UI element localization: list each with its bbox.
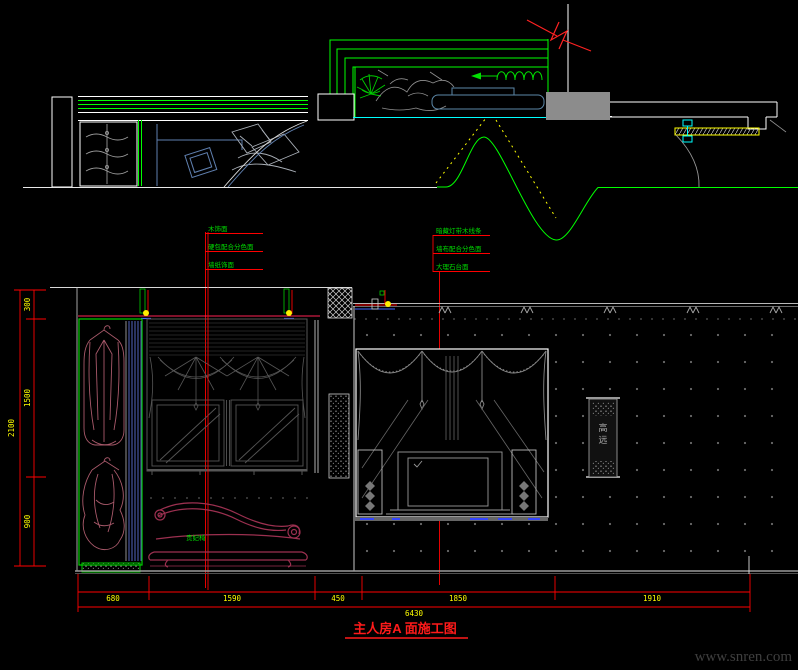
chaise-label: 贵妃椅: [186, 533, 206, 542]
dim-1850: 1850: [449, 594, 468, 603]
spotlight-icons: [439, 307, 782, 313]
door-swing-arc: [676, 135, 699, 187]
break-wave-line: [437, 137, 798, 240]
drawing-title: 主人房A 面施工图: [353, 621, 457, 636]
dim-900: 900: [23, 514, 32, 528]
dim-450: 450: [331, 594, 345, 603]
window-panels: [152, 400, 303, 466]
elevation-drawing-svg: 木饰面 硬包配合分色面 墙纸饰面 暗藏灯带木线条 墙布配合分色面 大理石台面: [0, 0, 798, 670]
scroll-char-2: 远: [598, 435, 607, 445]
elevation-view: 贵妃椅: [50, 232, 798, 590]
annotation-left-line3: 墙纸饰面: [208, 260, 235, 269]
dimension-left: 300 1500 900 2100: [7, 290, 46, 566]
plan-junction-box: [318, 94, 354, 120]
section-hatch-block: [328, 288, 352, 318]
leader-diagonal: [770, 120, 786, 132]
downlight-icon: [284, 289, 294, 319]
dim-1910: 1910: [643, 594, 662, 603]
textured-art-panel: [329, 394, 349, 478]
annotation-left-line1: 木饰面: [208, 224, 228, 233]
guide-dotted-2: [496, 120, 556, 218]
annotation-left-line2: 硬包配合分色面: [208, 242, 254, 251]
guide-dotted-1: [436, 118, 486, 183]
plan-bed-pillows: [224, 121, 307, 187]
dim-1590: 1590: [223, 594, 242, 603]
plan-pillar: [52, 97, 72, 187]
column-panel: [315, 320, 349, 478]
downlight-icon: [140, 289, 151, 319]
niche-base-band: [354, 517, 548, 521]
chaise-longue: [149, 503, 307, 567]
plan-platform: [432, 88, 544, 109]
plan-wall-block: [546, 92, 610, 120]
dim-680: 680: [106, 594, 120, 603]
window-curtain-unit: [147, 319, 307, 475]
hanging-scroll: 高 远: [586, 398, 620, 477]
plan-ceiling-band: [78, 97, 308, 121]
annotation-right-line2: 墙布配合分色面: [436, 244, 482, 253]
wardrobe-elevation: [79, 319, 142, 572]
dim-1500: 1500: [23, 388, 32, 407]
annotation-left: 木饰面 硬包配合分色面 墙纸饰面: [205, 224, 263, 588]
plan-door: [675, 120, 759, 187]
scroll-char-1: 高: [598, 422, 607, 433]
swag-curtains: [149, 357, 305, 418]
plan-view: [23, 4, 798, 240]
cad-drawing-canvas: 木饰面 硬包配合分色面 墙纸饰面 暗藏灯带木线条 墙布配合分色面 大理石台面: [0, 0, 798, 670]
annotation-right-line3: 大理石台面: [436, 262, 469, 271]
watermark: www.snren.com: [695, 649, 793, 665]
plan-desk-chair: [157, 124, 242, 186]
blind-slats: [149, 323, 305, 355]
dim-total-2100: 2100: [7, 418, 16, 437]
ceiling-left: [78, 289, 320, 319]
annotation-right-line1: 暗藏灯带木线条: [436, 226, 482, 235]
drawing-title-block: 主人房A 面施工图: [345, 621, 468, 638]
dim-300: 300: [23, 297, 32, 311]
plan-wardrobe: [80, 120, 142, 186]
ceiling-right: [353, 290, 798, 319]
break-mark-icon: [527, 20, 591, 51]
coil-arrow-icon: [471, 72, 542, 80]
dim-total-6430: 6430: [405, 609, 424, 618]
plan-floor-break: [23, 118, 798, 240]
rock-sketch: [376, 70, 454, 111]
dimension-bottom: 680 1590 450 1850 1910 6430: [78, 574, 750, 618]
bed-niche: [354, 349, 548, 521]
